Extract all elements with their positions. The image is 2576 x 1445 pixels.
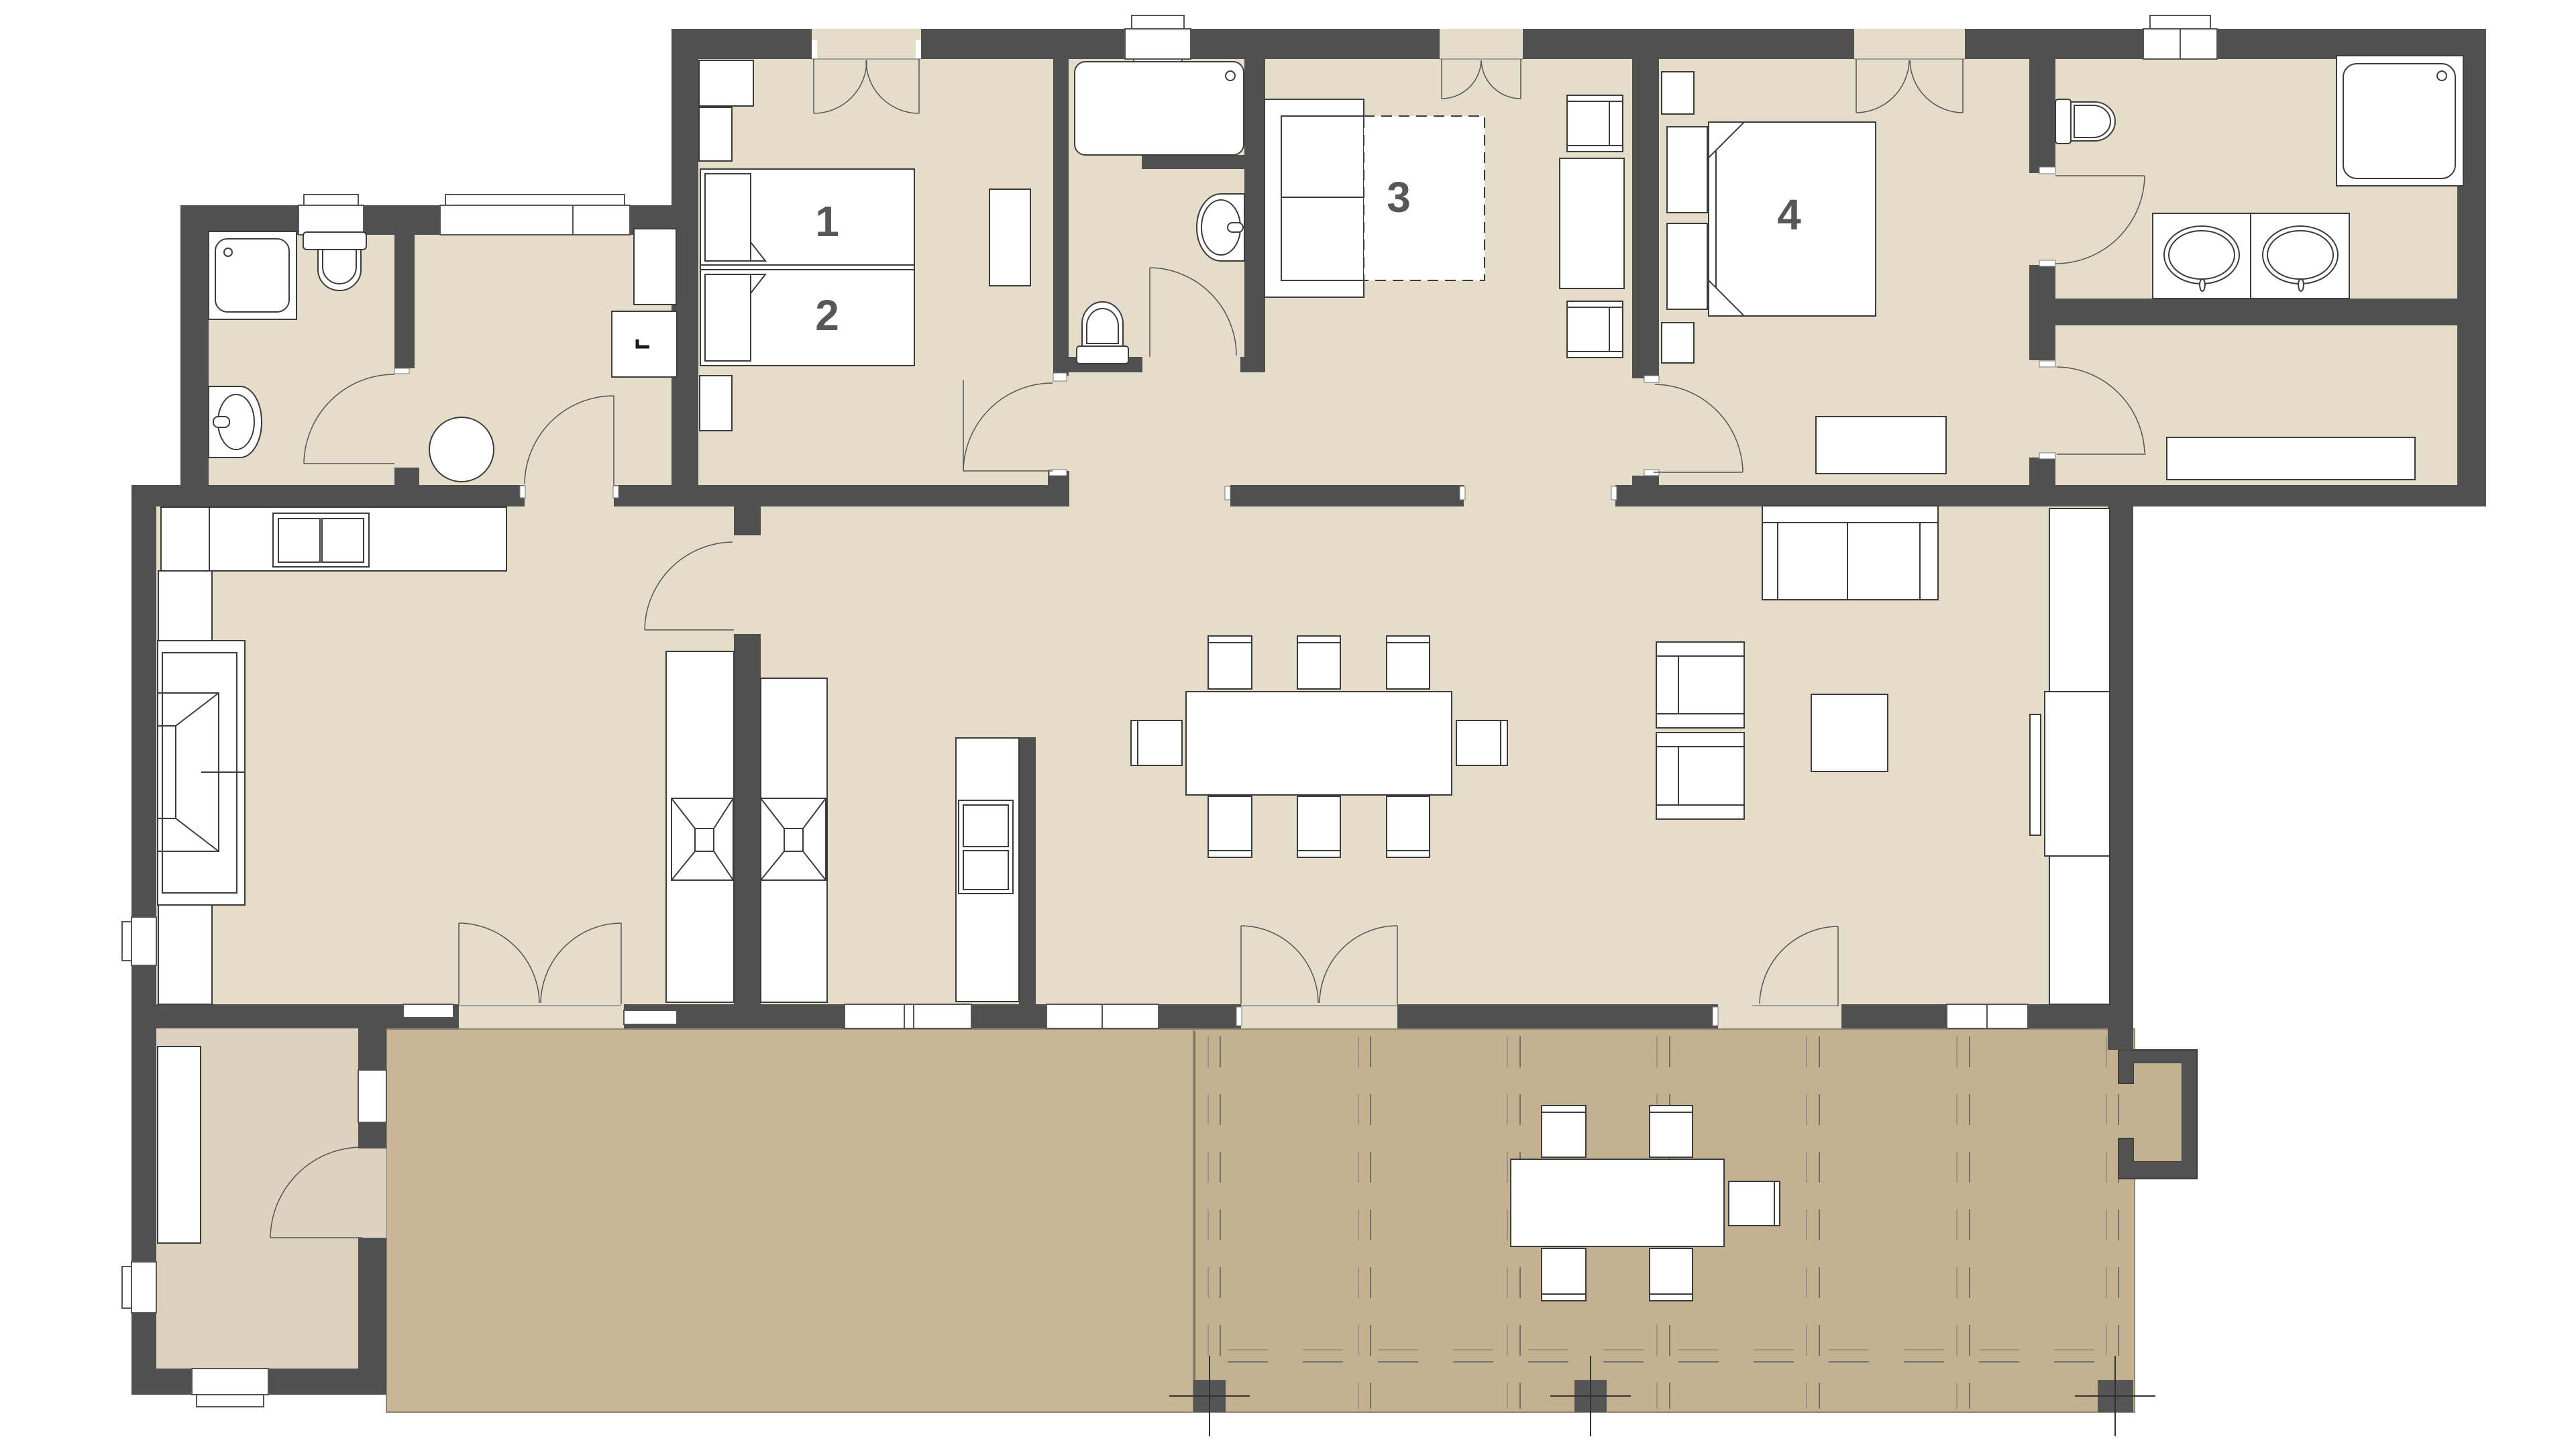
svg-text:2: 2 xyxy=(815,291,839,339)
svg-text:1: 1 xyxy=(815,197,839,246)
svg-text:3: 3 xyxy=(1387,173,1411,221)
svg-text:4: 4 xyxy=(1777,191,1801,239)
